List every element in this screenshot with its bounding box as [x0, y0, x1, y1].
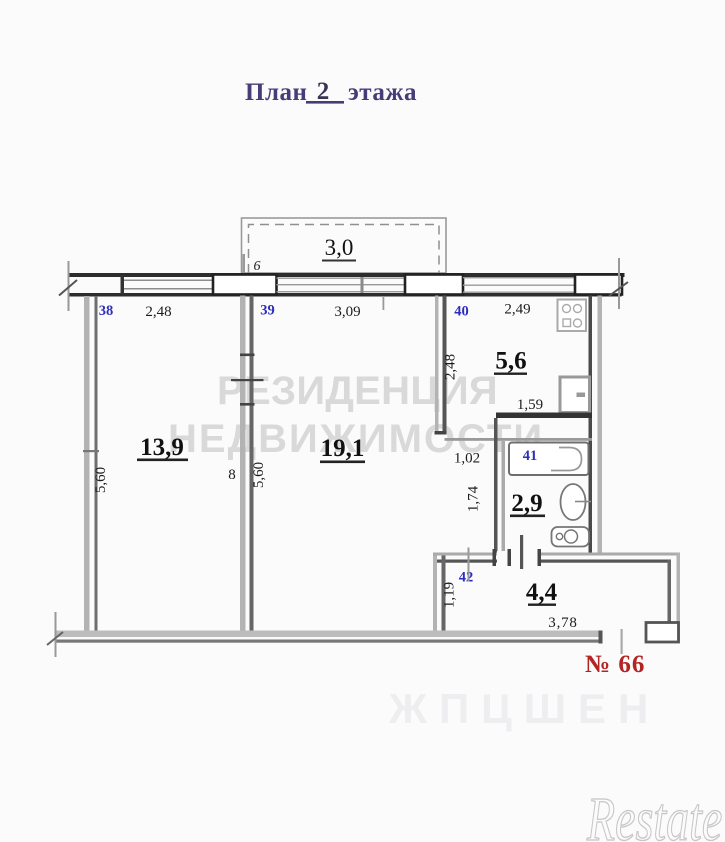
svg-text:39: 39: [260, 303, 275, 319]
svg-text:19,1: 19,1: [321, 435, 365, 462]
svg-text:ЖПЦШЕН: ЖПЦШЕН: [388, 685, 660, 732]
svg-text:№ 66: № 66: [585, 651, 645, 678]
svg-text:Restate: Restate: [586, 784, 722, 842]
svg-text:этажа: этажа: [348, 79, 417, 106]
svg-text:3,0: 3,0: [325, 235, 354, 260]
svg-text:13,9: 13,9: [140, 434, 184, 461]
svg-text:1,59: 1,59: [517, 397, 543, 413]
svg-text:38: 38: [99, 303, 114, 319]
svg-text:2: 2: [317, 78, 330, 105]
svg-text:1,19: 1,19: [442, 582, 458, 608]
svg-text:1,74: 1,74: [466, 485, 482, 512]
svg-text:2,48: 2,48: [145, 304, 171, 320]
svg-text:6: 6: [254, 259, 261, 274]
svg-text:План: План: [245, 79, 307, 106]
svg-text:8: 8: [228, 467, 236, 483]
svg-text:3,78: 3,78: [548, 615, 577, 631]
svg-text:4,4: 4,4: [526, 579, 558, 606]
svg-text:2,48: 2,48: [443, 354, 459, 380]
svg-text:5,6: 5,6: [495, 348, 526, 375]
svg-text:42: 42: [459, 570, 474, 586]
svg-text:40: 40: [454, 304, 469, 320]
svg-text:2,9: 2,9: [511, 490, 542, 517]
svg-text:1,02: 1,02: [454, 451, 480, 467]
svg-text:3,09: 3,09: [334, 304, 360, 320]
svg-text:5,60: 5,60: [93, 467, 109, 493]
svg-text:41: 41: [523, 448, 538, 464]
svg-text:2,49: 2,49: [504, 302, 530, 318]
svg-text:5,60: 5,60: [251, 462, 267, 488]
